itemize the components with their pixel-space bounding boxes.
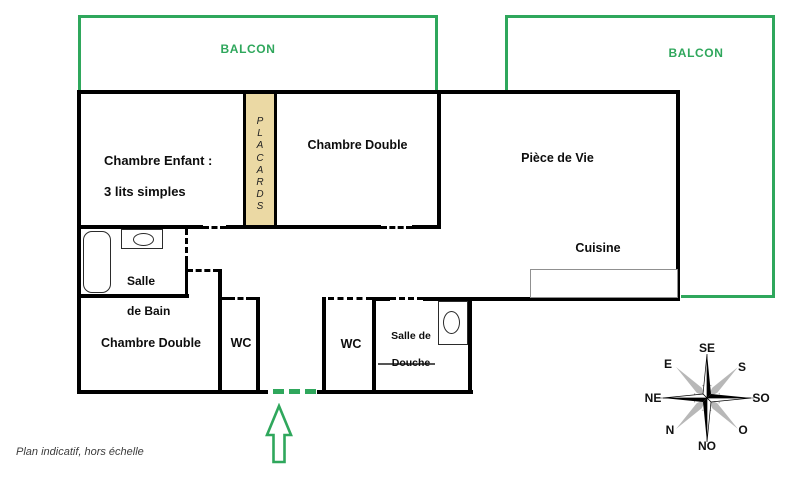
wall <box>437 94 441 225</box>
balcony-2-outline <box>505 15 508 93</box>
wall <box>256 297 260 394</box>
wall <box>226 225 243 229</box>
room-label-piece-de-vie: Pièce de Vie <box>505 151 610 165</box>
wall <box>468 301 472 394</box>
compass-label-up: SE <box>699 341 715 355</box>
room-label-chambre-double-bottom: Chambre Double <box>94 336 208 350</box>
room-label-wc-right: WC <box>337 337 365 351</box>
floor-plan: BALCON BALCON PLACARDS <box>0 0 800 477</box>
room-label-chambre-enfant: Chambre Enfant : 3 lits simples <box>104 137 212 199</box>
door-opening <box>203 226 226 229</box>
door-opening <box>381 226 412 229</box>
balcony-2-outline <box>505 15 775 18</box>
wall <box>77 90 680 94</box>
wall <box>222 297 229 300</box>
room-label-chambre-double-top: Chambre Double <box>300 138 415 152</box>
entrance-arrow-icon <box>264 403 296 465</box>
door-opening <box>328 297 372 300</box>
wall <box>77 390 268 394</box>
door-opening <box>229 297 252 300</box>
balcony-2-label: BALCON <box>640 46 752 60</box>
plan-note: Plan indicatif, hors échelle <box>16 446 144 458</box>
wall <box>322 297 326 394</box>
wall <box>185 262 188 297</box>
wall <box>317 390 473 394</box>
compass-label-upper-left: E <box>664 357 672 371</box>
wall <box>376 297 390 301</box>
compass-label-upper-right: S <box>738 360 746 374</box>
wall <box>277 225 381 229</box>
room-label-salle-de-bain: Salle de Bain <box>127 259 170 319</box>
wall <box>218 269 222 394</box>
door-opening <box>185 229 188 262</box>
door-opening <box>390 297 423 300</box>
balcony-2-outline <box>772 15 775 298</box>
wall <box>372 297 376 394</box>
bathtub-icon <box>83 231 111 293</box>
room-label-salle-de-douche: Salle de Douche <box>387 316 435 370</box>
compass-label-down: NO <box>698 439 716 453</box>
compass-rose-icon: SE S SO O NO N NE E <box>638 338 778 456</box>
sink-basin-icon <box>133 233 154 246</box>
balcony-2-outline <box>681 295 775 298</box>
placards-label: PLACARDS <box>246 116 274 214</box>
compass-label-right: SO <box>752 391 769 405</box>
placards-closet: PLACARDS <box>243 94 277 229</box>
balcony-1-label: BALCON <box>78 42 418 56</box>
room-label-cuisine: Cuisine <box>570 241 626 255</box>
door-opening <box>187 269 219 272</box>
wall <box>77 90 81 394</box>
room-label-wc-left: WC <box>227 336 255 350</box>
toilet-bowl-icon <box>443 311 460 334</box>
compass-label-lower-right: O <box>738 423 747 437</box>
kitchen-counter <box>530 269 678 298</box>
wall <box>412 225 441 229</box>
compass-label-left: NE <box>645 391 662 405</box>
compass-label-lower-left: N <box>666 423 675 437</box>
